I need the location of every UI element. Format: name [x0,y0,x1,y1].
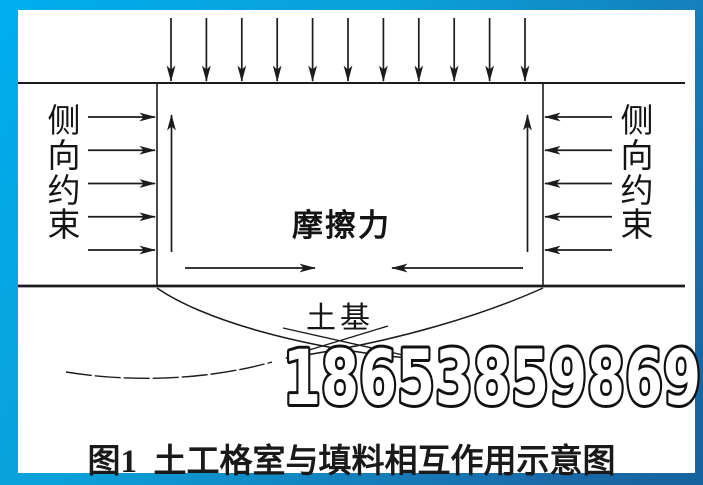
subgrade-label: 土基 [306,293,374,337]
lateral-confinement-label-left: 侧向约束 [46,105,82,244]
figure-frame: 18653859869 侧向约束 侧向约束 摩擦力 土基 图1 土工格室与填料相… [0,0,703,485]
watermark-number: 18653859869 [283,333,701,422]
friction-label: 摩擦力 [292,200,391,245]
slip-curve-shallow [66,362,272,378]
figure-caption: 图1 土工格室与填料相互作用示意图 [0,434,703,482]
lateral-confinement-label-right: 侧向约束 [619,105,655,244]
